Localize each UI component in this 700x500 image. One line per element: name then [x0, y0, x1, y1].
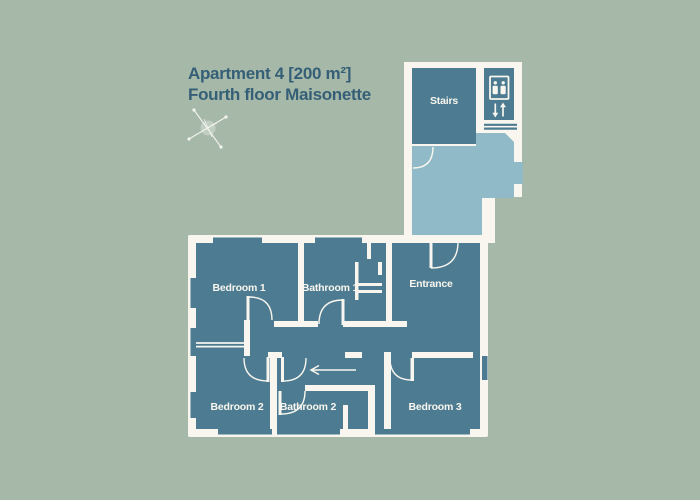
- floor-plan-canvas: Apartment 4 [200 m²] Fourth floor Maison…: [0, 0, 700, 500]
- page-title: Apartment 4 [200 m²] Fourth floor Maison…: [188, 64, 371, 104]
- title-line-2: Fourth floor Maisonette: [188, 85, 371, 104]
- room-label-bathroom2: Bathroom 2: [280, 401, 337, 413]
- room-label-entrance: Entrance: [409, 278, 453, 290]
- room-label-bedroom3: Bedroom 3: [408, 401, 461, 413]
- stairwell-block: Stairs: [404, 62, 523, 243]
- apartment-plan: Bedroom 1 Bathroom 1 Entrance Bedroom 2 …: [188, 235, 488, 437]
- room-label-bedroom1: Bedroom 1: [212, 282, 265, 294]
- title-line-1: Apartment 4 [200 m²]: [188, 64, 351, 83]
- room-label-bathroom1: Bathroom 1: [302, 282, 359, 294]
- landing-area: [412, 133, 523, 236]
- room-label-bedroom2: Bedroom 2: [210, 401, 263, 413]
- compass-rose-icon: [187, 108, 227, 148]
- room-label-stairs: Stairs: [430, 95, 458, 107]
